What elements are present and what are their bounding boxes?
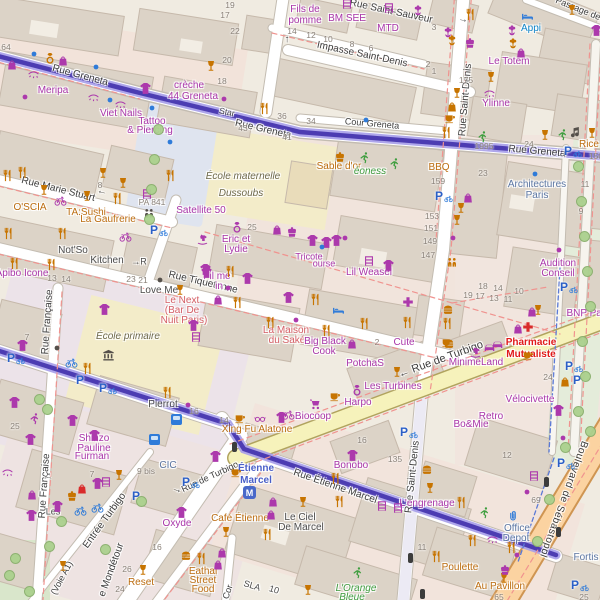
house-number: 150 bbox=[589, 151, 600, 161]
poi-label: MTD bbox=[377, 24, 399, 34]
poi-label: Fils de bbox=[290, 5, 319, 15]
poi-label: École primaire bbox=[96, 332, 160, 342]
house-number: 18 bbox=[478, 281, 487, 291]
clip-icon bbox=[507, 510, 519, 522]
fork-icon bbox=[466, 534, 479, 547]
house-number: 18 bbox=[217, 76, 226, 86]
map-overlay-layer: Rue GrenetaRue GrenetaRue GrenetaCour Gr… bbox=[0, 0, 600, 600]
shirt-icon bbox=[282, 291, 295, 304]
fork-icon bbox=[320, 324, 333, 337]
poi-label: Étienne bbox=[238, 464, 274, 474]
house-number: 69 bbox=[531, 495, 540, 505]
traffic-light-icon bbox=[408, 553, 413, 563]
tree bbox=[579, 231, 590, 242]
poi-label: BNP Paribas bbox=[566, 309, 600, 319]
runner-icon bbox=[351, 566, 364, 579]
cake-icon bbox=[334, 151, 346, 163]
bag-icon bbox=[267, 496, 279, 508]
ring-icon bbox=[44, 52, 56, 64]
dot-icon bbox=[148, 104, 156, 112]
tree bbox=[573, 161, 584, 172]
glass-icon bbox=[113, 469, 125, 481]
house-number: 20 bbox=[222, 55, 231, 65]
parking-icon: P bbox=[400, 425, 418, 439]
cart-icon bbox=[309, 398, 321, 410]
flower-icon bbox=[506, 24, 518, 36]
ring-icon bbox=[351, 384, 363, 396]
parking-icon: P bbox=[150, 223, 168, 237]
bus-stop-icon bbox=[171, 414, 182, 425]
house-number: 11 bbox=[418, 542, 427, 552]
house-number: 24 bbox=[115, 584, 124, 594]
fork-icon bbox=[16, 166, 29, 179]
lash-icon bbox=[483, 87, 496, 100]
cross-icon bbox=[522, 321, 534, 333]
fork-icon bbox=[455, 496, 468, 509]
dot-icon bbox=[166, 138, 174, 146]
cup-icon bbox=[230, 466, 242, 478]
shirt-icon bbox=[139, 82, 152, 95]
parking-icon: P bbox=[76, 373, 84, 387]
horse-icon bbox=[469, 346, 482, 359]
poi-label: SLA bbox=[243, 579, 262, 593]
lash-icon bbox=[27, 68, 40, 81]
glass-icon bbox=[117, 177, 129, 189]
house-number: 11 bbox=[504, 294, 513, 304]
fork-icon bbox=[440, 126, 453, 139]
shirt-icon bbox=[552, 404, 565, 417]
traffic-light-icon bbox=[544, 477, 549, 487]
house-number: 12 bbox=[502, 450, 511, 460]
fork-icon bbox=[195, 552, 208, 565]
shirt-icon bbox=[66, 414, 79, 427]
bed-icon bbox=[521, 10, 534, 23]
poi-label: Ylinne bbox=[482, 99, 510, 109]
poi-label: →R bbox=[131, 258, 147, 267]
shirt-icon bbox=[88, 429, 101, 442]
ring-icon bbox=[231, 221, 243, 233]
poi-label: Paris bbox=[526, 191, 549, 201]
shelf-icon bbox=[100, 476, 112, 488]
car-icon bbox=[491, 337, 504, 350]
glass-icon bbox=[451, 87, 463, 99]
parking-icon: P bbox=[7, 351, 25, 365]
parking-icon: P bbox=[560, 280, 578, 294]
house-number: 43 bbox=[238, 123, 247, 133]
tree bbox=[532, 536, 543, 547]
dot-icon bbox=[224, 284, 232, 292]
tree bbox=[136, 496, 147, 507]
house-number: 65 bbox=[494, 592, 503, 600]
house-number: 25 bbox=[10, 421, 19, 431]
dot-icon bbox=[156, 276, 164, 284]
fork-icon bbox=[224, 265, 237, 278]
glass-icon bbox=[57, 560, 69, 572]
house-number: 153 bbox=[425, 211, 439, 221]
house-number: 135 bbox=[388, 454, 402, 464]
tree bbox=[573, 406, 584, 417]
bag-icon bbox=[212, 559, 224, 571]
house-number: 19 bbox=[463, 290, 472, 300]
house-number: 64 bbox=[1, 42, 10, 52]
dot-icon bbox=[449, 234, 457, 242]
dot-icon bbox=[30, 50, 38, 58]
tree bbox=[24, 586, 35, 597]
bag-icon bbox=[559, 376, 571, 388]
house-number: 8 bbox=[350, 39, 355, 49]
parking-icon: P bbox=[182, 475, 200, 489]
house-number: 22 bbox=[230, 26, 239, 36]
flower-icon bbox=[507, 37, 519, 49]
burger-icon bbox=[180, 550, 192, 562]
parking-icon: P bbox=[99, 381, 117, 395]
shirt-icon bbox=[51, 500, 64, 513]
street-label: Rue Greneta bbox=[508, 145, 566, 160]
fork-icon bbox=[45, 258, 58, 271]
street-label: Cour Greneta bbox=[344, 117, 399, 131]
poi-label: Bonobo bbox=[334, 461, 368, 471]
lash-icon bbox=[486, 533, 499, 546]
shelf-icon bbox=[190, 331, 202, 343]
poi-label: 44 Greneta bbox=[168, 92, 218, 102]
bag-icon bbox=[265, 509, 277, 521]
tree bbox=[582, 266, 593, 277]
bag-icon bbox=[6, 59, 18, 71]
house-number: 26 bbox=[122, 564, 131, 574]
dot-icon bbox=[559, 434, 567, 442]
fork-icon bbox=[258, 102, 271, 115]
shelf-icon bbox=[392, 502, 404, 514]
house-number: 175 bbox=[459, 75, 473, 85]
metro-icon: M bbox=[243, 486, 256, 499]
house-number: 1995 bbox=[475, 141, 494, 151]
fork-icon bbox=[164, 169, 177, 182]
shelf-icon bbox=[341, 0, 353, 10]
house-number: 25 bbox=[247, 222, 256, 232]
poi-label: Conseil bbox=[541, 269, 574, 279]
runner-icon bbox=[476, 130, 489, 143]
shirt-icon bbox=[8, 396, 21, 409]
house-number: 13 bbox=[489, 293, 498, 303]
bag-icon bbox=[216, 547, 228, 559]
house-number: 159 bbox=[431, 176, 445, 186]
poi-label: Dussoubs bbox=[219, 189, 263, 199]
glass-icon bbox=[81, 190, 93, 202]
poi-label: Star bbox=[218, 106, 235, 118]
lash-icon bbox=[1, 466, 14, 479]
poi-label: Bo&Mie bbox=[453, 420, 488, 430]
bus-stop-icon bbox=[149, 434, 160, 445]
shirt-icon bbox=[199, 263, 212, 276]
fork-icon bbox=[56, 227, 69, 240]
tree bbox=[576, 196, 587, 207]
museum-icon bbox=[102, 349, 115, 362]
house-number: 24 bbox=[543, 372, 552, 382]
dot-icon bbox=[531, 170, 539, 178]
lash-icon bbox=[114, 98, 127, 111]
house-number: 41 bbox=[282, 132, 291, 142]
tree bbox=[34, 394, 45, 405]
tree bbox=[585, 426, 596, 437]
poi-label: Reset bbox=[128, 578, 154, 588]
tree bbox=[4, 570, 15, 581]
poi-label: ourse bbox=[313, 260, 336, 269]
bike-icon bbox=[119, 230, 132, 243]
poi-label: in bbox=[215, 282, 223, 292]
house-number: 2 bbox=[375, 337, 380, 347]
dot-icon bbox=[318, 243, 326, 251]
tree bbox=[44, 541, 55, 552]
house-number: 24 bbox=[524, 139, 533, 149]
tree bbox=[42, 404, 53, 415]
flower-icon bbox=[446, 34, 458, 46]
glass-icon bbox=[586, 127, 598, 139]
bed-icon bbox=[332, 304, 345, 317]
parking-icon: P bbox=[435, 189, 453, 203]
dot-icon bbox=[292, 316, 300, 324]
poi-label: Lydie bbox=[224, 245, 248, 255]
tree bbox=[577, 336, 588, 347]
poi-label: Les Turbines bbox=[364, 382, 421, 392]
fork-icon bbox=[401, 316, 414, 329]
poi-label: éoness bbox=[354, 167, 386, 177]
dot-icon bbox=[53, 344, 61, 352]
poi-label: De Marcel bbox=[278, 523, 324, 533]
poi-label: Satellite 50 bbox=[176, 206, 225, 216]
poi-label: Biocoop bbox=[295, 412, 331, 422]
poi-label: Kitchen bbox=[90, 256, 123, 266]
poi-label: CIC bbox=[159, 461, 176, 471]
shirt-icon bbox=[175, 506, 188, 519]
bike-icon bbox=[65, 356, 78, 369]
house-number: 8 bbox=[98, 180, 103, 190]
poi-label: PotchaS bbox=[346, 359, 384, 369]
poi-label: Meripa bbox=[38, 86, 69, 96]
lash-icon bbox=[87, 91, 100, 104]
house-number: 14 bbox=[493, 283, 502, 293]
poi-label: BM SEE bbox=[328, 14, 366, 24]
shirt-icon bbox=[209, 450, 222, 463]
tree bbox=[149, 154, 160, 165]
fork-icon bbox=[430, 550, 443, 563]
poi-label: Oxyde bbox=[163, 519, 192, 529]
house-number: 147 bbox=[421, 250, 435, 260]
tree bbox=[560, 442, 571, 453]
fork-icon bbox=[8, 257, 21, 270]
poi-label: Apibo Icone bbox=[0, 269, 48, 279]
poi-label: Furman bbox=[75, 452, 109, 462]
cake-icon bbox=[286, 226, 298, 238]
glass-icon bbox=[566, 4, 578, 16]
glass-icon bbox=[297, 496, 309, 508]
dot-icon bbox=[21, 93, 29, 101]
tree bbox=[144, 214, 155, 225]
shirt-icon bbox=[25, 509, 38, 522]
burger-icon bbox=[443, 338, 455, 350]
house-number: 6 bbox=[369, 43, 374, 53]
flower-icon bbox=[412, 4, 424, 16]
fork-icon bbox=[358, 317, 371, 330]
house-number: 25 bbox=[579, 592, 588, 600]
house-number: 12 bbox=[306, 30, 315, 40]
poi-label: Marcel bbox=[240, 476, 272, 486]
bag-icon bbox=[57, 55, 69, 67]
poi-label: Cute bbox=[393, 338, 414, 348]
street-label: Entrée Turbigo bbox=[82, 492, 129, 551]
poi-label: Cook bbox=[312, 347, 335, 357]
house-number: 11 bbox=[581, 179, 590, 189]
fork-icon bbox=[464, 8, 477, 21]
fork-icon bbox=[231, 296, 244, 309]
cup-icon bbox=[329, 390, 341, 402]
house-number: 1 bbox=[432, 66, 437, 76]
house-number: 17 bbox=[475, 291, 484, 301]
glass-icon bbox=[485, 71, 497, 83]
poi-label: du Saké bbox=[269, 336, 306, 346]
poi-label: Not'So bbox=[58, 246, 88, 256]
map-canvas[interactable]: Rue GrenetaRue GrenetaRue GrenetaCour Gr… bbox=[0, 0, 600, 600]
house-number: 16 bbox=[152, 542, 161, 552]
glass-icon bbox=[97, 167, 109, 179]
shirt-icon bbox=[24, 433, 37, 446]
poi-label: Appi bbox=[521, 24, 541, 34]
tree bbox=[146, 184, 157, 195]
house-number: 9 bbox=[579, 206, 584, 216]
poi-label: ↑ bbox=[285, 35, 290, 45]
runner-icon bbox=[388, 157, 401, 170]
poi-label: O'SCIA bbox=[13, 203, 46, 213]
street-label: Impasse Saint-Denis bbox=[316, 41, 408, 70]
glass-icon bbox=[539, 129, 551, 141]
tree bbox=[100, 544, 111, 555]
house-number: 23 bbox=[126, 274, 135, 284]
poi-label: Poulette bbox=[442, 563, 479, 573]
burger-icon bbox=[421, 464, 433, 476]
house-number: 16 bbox=[357, 435, 366, 445]
tree bbox=[56, 516, 67, 527]
street-label: Cor bbox=[221, 584, 234, 600]
bag-icon bbox=[462, 192, 474, 204]
bike-icon bbox=[282, 408, 295, 421]
tree bbox=[544, 494, 555, 505]
poi-label: Café Étienne bbox=[211, 514, 269, 524]
house-number: 10 bbox=[323, 34, 332, 44]
cup-icon bbox=[444, 112, 456, 124]
parking-icon: P bbox=[565, 359, 583, 373]
poi-label: Pharmacie bbox=[506, 338, 557, 348]
poi-label: MinimeLand bbox=[449, 358, 503, 368]
house-number: 19 bbox=[225, 0, 234, 10]
tree bbox=[580, 371, 591, 382]
runner-icon bbox=[358, 151, 371, 164]
house-number: 13 bbox=[47, 273, 56, 283]
poi-label: Vélocivette bbox=[506, 395, 555, 405]
house-number: 3 bbox=[432, 22, 437, 32]
poi-label: & Piercing bbox=[127, 126, 173, 136]
glass-icon bbox=[205, 60, 217, 72]
house-number: 21 bbox=[138, 275, 147, 285]
dot-icon bbox=[220, 95, 228, 103]
bag-icon bbox=[526, 306, 538, 318]
house-number: 10 bbox=[514, 286, 523, 296]
house-number: 34 bbox=[306, 116, 315, 126]
poi-label: Bleue bbox=[339, 593, 365, 600]
shirt-icon bbox=[346, 449, 359, 462]
tree bbox=[153, 124, 164, 135]
fork-icon bbox=[161, 386, 174, 399]
dot-icon bbox=[555, 246, 563, 254]
cup-icon bbox=[522, 349, 534, 361]
glass-icon bbox=[38, 184, 50, 196]
glasses-icon bbox=[254, 413, 266, 425]
poi-label: crèche bbox=[174, 81, 204, 91]
shelf-icon bbox=[376, 500, 388, 512]
house-number: 2 bbox=[426, 59, 431, 69]
house-number: 151 bbox=[424, 223, 438, 233]
glass-icon bbox=[424, 482, 436, 494]
people-icon bbox=[446, 256, 458, 268]
fork-icon bbox=[261, 528, 274, 541]
bag-icon bbox=[446, 101, 458, 113]
tree bbox=[10, 553, 21, 564]
fork-icon bbox=[333, 495, 346, 508]
music-icon bbox=[569, 126, 581, 138]
traffic-light-icon bbox=[420, 589, 425, 599]
cup-icon bbox=[234, 412, 246, 424]
shirt-icon bbox=[590, 24, 600, 37]
glass-icon bbox=[391, 366, 403, 378]
cake-icon bbox=[66, 490, 78, 502]
shirt-icon bbox=[16, 339, 29, 352]
fork-icon bbox=[441, 317, 454, 330]
runner-icon bbox=[478, 506, 491, 519]
tree bbox=[585, 301, 596, 312]
shirt-icon bbox=[241, 272, 254, 285]
poi-label: 10 bbox=[268, 584, 280, 596]
poi-label: pomme bbox=[288, 16, 321, 26]
poi-label: Nuit Paris) bbox=[161, 316, 208, 326]
poi-label: Fortis bbox=[574, 553, 599, 563]
horse-icon bbox=[196, 233, 209, 246]
house-number: 14 bbox=[61, 274, 70, 284]
house-number: 9 bis bbox=[137, 466, 155, 476]
cake-icon bbox=[464, 37, 476, 49]
poi-label: Viet Nails bbox=[100, 109, 142, 119]
house-number: 14 bbox=[219, 415, 228, 425]
dot-icon bbox=[92, 63, 100, 71]
poi-label: Pierrot bbox=[148, 400, 177, 410]
shirt-icon bbox=[187, 319, 200, 332]
bag-icon bbox=[26, 489, 38, 501]
shelf-icon bbox=[383, 2, 395, 14]
dot-icon bbox=[106, 96, 114, 104]
bike-icon bbox=[91, 501, 104, 514]
poi-label: Food bbox=[192, 585, 215, 595]
house-number: 17 bbox=[220, 10, 229, 20]
glass-icon bbox=[174, 284, 186, 296]
traffic-light-icon bbox=[232, 442, 237, 452]
shirt-icon bbox=[306, 234, 319, 247]
poi-label: La Gaufrerie bbox=[80, 215, 136, 225]
traffic-light-icon bbox=[556, 527, 561, 537]
glass-icon bbox=[302, 584, 314, 596]
bag-icon bbox=[212, 294, 224, 306]
parking-icon: P bbox=[564, 144, 582, 158]
shirt-icon bbox=[382, 259, 395, 272]
fork-icon bbox=[329, 472, 342, 485]
burger-icon bbox=[442, 304, 454, 316]
cake-icon bbox=[499, 564, 511, 576]
